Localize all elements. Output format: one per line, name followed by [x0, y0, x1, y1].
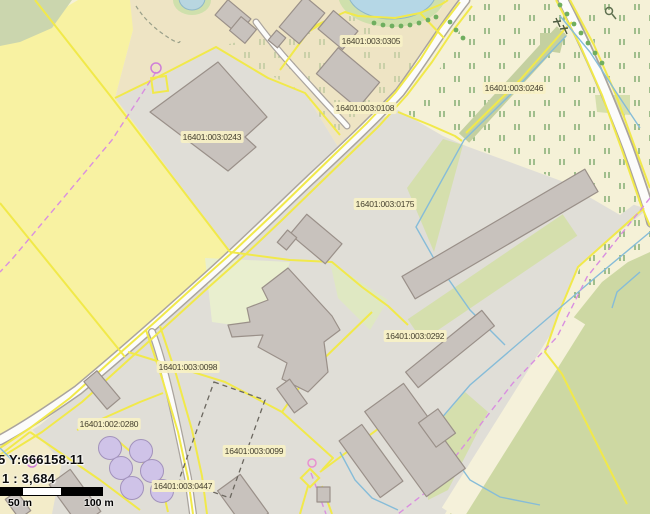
scale-bar-labels: 50 m 100 m [0, 497, 140, 511]
parcel-label-0099[interactable]: 16401:003:0099 [223, 445, 286, 457]
parcel-label-0175[interactable]: 16401:003:0175 [354, 198, 417, 210]
parcel-label-0108[interactable]: 16401:003:0108 [334, 102, 397, 114]
map-viewport[interactable]: 16401:003:030516401:003:010816401:003:02… [0, 0, 650, 514]
parcel-label-0292[interactable]: 16401:003:0292 [384, 330, 447, 342]
scale-bar [0, 487, 103, 496]
parcel-label-0305[interactable]: 16401:003:0305 [340, 35, 403, 47]
parcel-label-0243[interactable]: 16401:003:0243 [181, 131, 244, 143]
status-overlay: 5 Y:666158.11 1 : 3,684 [2, 452, 84, 486]
parcel-label-0280[interactable]: 16401:002:0280 [78, 418, 141, 430]
scale-bar-mid-label: 50 m [8, 497, 32, 509]
parcel-label-0246[interactable]: 16401:003:0246 [483, 82, 546, 94]
parcel-label-0098[interactable]: 16401:003:0098 [157, 361, 220, 373]
scale-bar-end-label: 100 m [84, 497, 114, 509]
parcel-label-0447[interactable]: 16401:003:0447 [152, 480, 215, 492]
cursor-coordinates: 5 Y:666158.11 [0, 452, 84, 467]
map-canvas[interactable] [0, 0, 650, 514]
map-scale: 1 : 3,684 [2, 471, 84, 486]
